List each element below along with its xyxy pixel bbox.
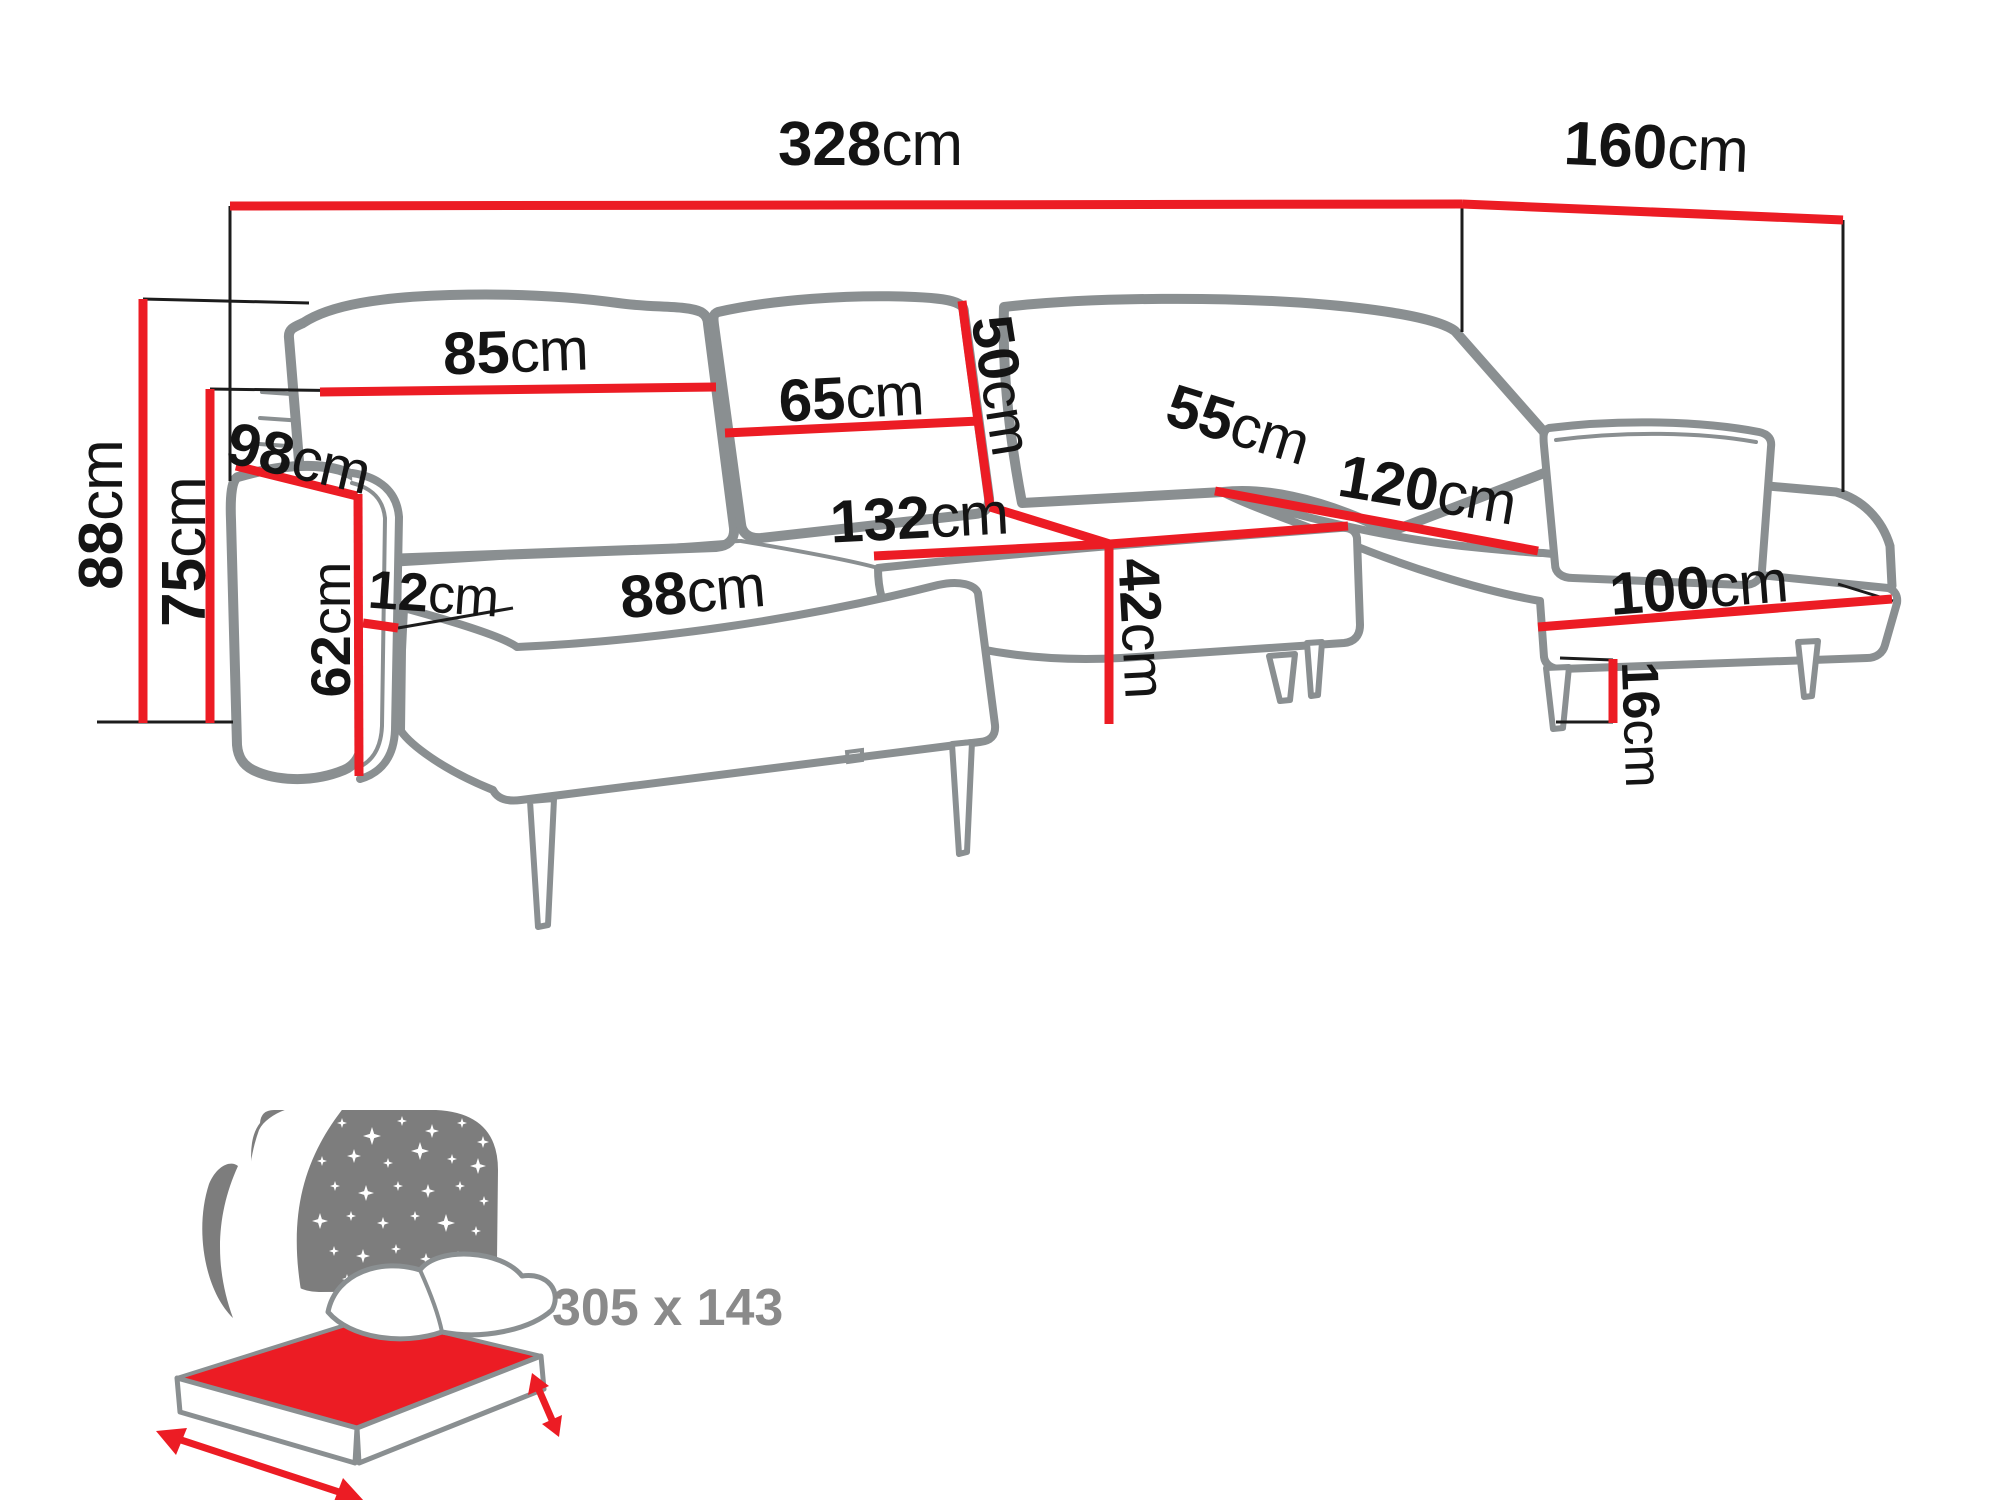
label-overall-depth: 160cm	[1562, 109, 1749, 186]
label-back-cushion-left: 85cm	[442, 316, 589, 388]
moon-crescent	[202, 1164, 238, 1318]
label-armrest-height: 62cm	[299, 563, 362, 698]
dim-line-armrest-width	[363, 623, 398, 628]
label-overall-height: 88cm	[67, 440, 136, 590]
chaise-back-corner	[1768, 486, 1892, 586]
dim-line-overall-depth	[1462, 204, 1843, 220]
label-chaise-width: 100cm	[1607, 547, 1790, 628]
label-armrest-width: 12cm	[366, 560, 500, 629]
dim-line-overall-width	[230, 204, 1462, 206]
dim-line-back-cushion-left	[320, 387, 716, 392]
sleeping-area-size: 305 x 143	[552, 1279, 783, 1337]
label-middle-seat-width: 132cm	[828, 479, 1009, 555]
label-leg-height: 16cm	[1610, 660, 1672, 787]
sofa-dimension-diagram: 328cm 160cm 88cm 75cm 98cm 62cm 12cm 85c…	[0, 0, 2000, 1500]
diagram-canvas: 328cm 160cm 88cm 75cm 98cm 62cm 12cm 85c…	[0, 0, 2000, 1500]
label-overall-width: 328cm	[778, 110, 962, 179]
label-left-seat-width: 88cm	[617, 552, 767, 631]
label-seat-height: 42cm	[1106, 556, 1178, 699]
sleeping-function-icon: 305 x 143	[156, 1103, 783, 1500]
label-back-cushion-middle: 65cm	[777, 360, 925, 434]
label-backrest-height: 75cm	[150, 477, 219, 627]
